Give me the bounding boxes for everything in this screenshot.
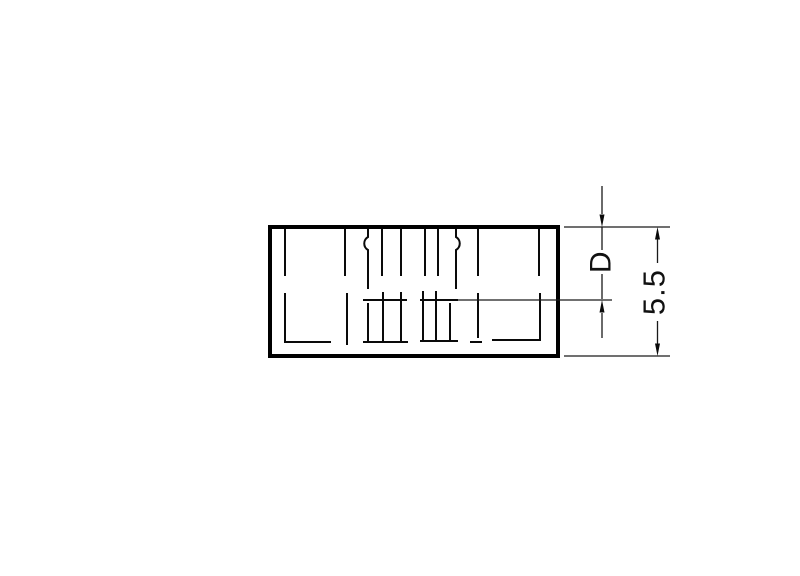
- arrowhead-down-icon: [655, 344, 660, 357]
- contact-cage-right: [420, 291, 458, 341]
- dimension-d-label: D: [585, 251, 618, 273]
- part-outline-rect: [270, 227, 558, 356]
- hidden-lines-upper: [285, 229, 539, 289]
- lower-left-corner: [285, 293, 331, 342]
- wire-break-right: [456, 229, 460, 289]
- arrowhead-up-icon: [655, 227, 660, 240]
- dimension-d: D: [585, 186, 618, 338]
- part-outline: [270, 227, 558, 356]
- arrowhead-up-icon: [600, 300, 605, 313]
- wire-break-left: [364, 229, 368, 289]
- dimension-5-5-label: 5.5: [637, 269, 672, 315]
- hidden-lines: [285, 229, 540, 345]
- drawing-canvas: D 5.5: [0, 0, 800, 576]
- arrowhead-down-icon: [600, 215, 605, 228]
- dimension-5-5: 5.5: [637, 227, 672, 356]
- hidden-lines-lower: [285, 291, 540, 345]
- contact-cage-left: [363, 292, 408, 342]
- technical-drawing: D 5.5: [0, 0, 800, 576]
